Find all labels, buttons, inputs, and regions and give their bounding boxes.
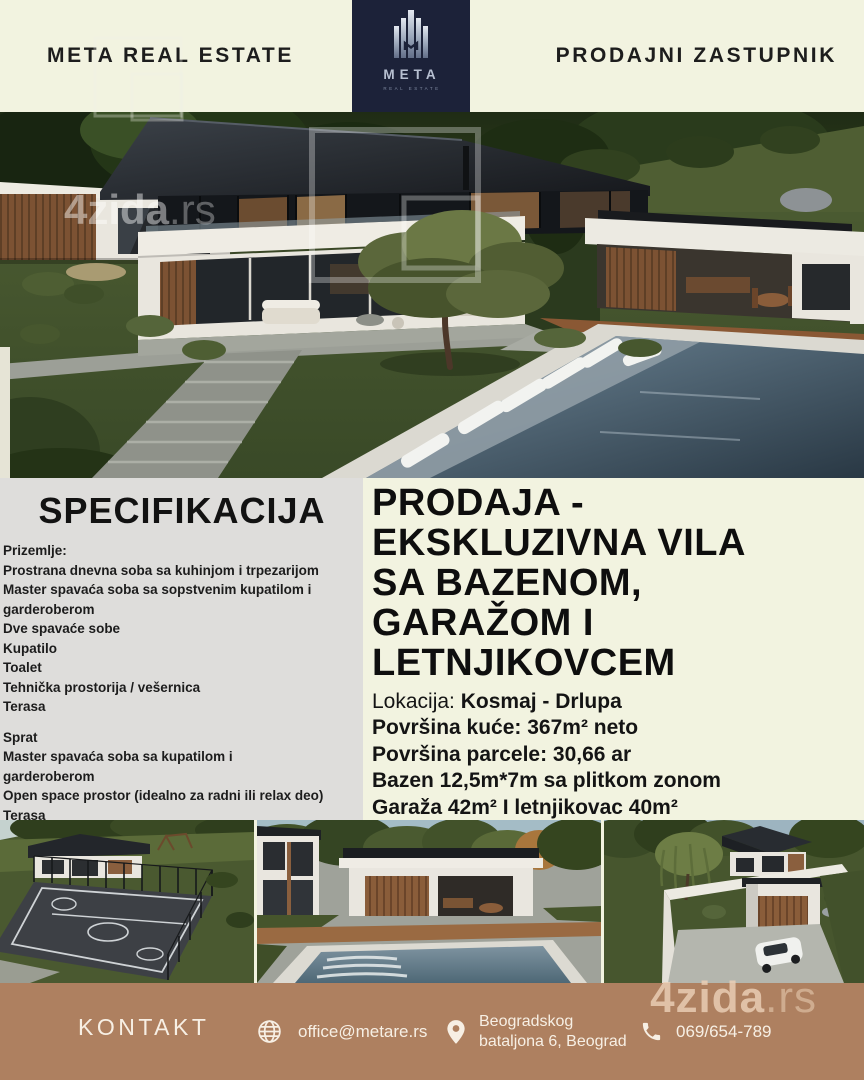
- real-estate-flyer: META REAL ESTATE META REAL E: [0, 0, 864, 1080]
- listing-panel: PRODAJA - EKSKLUZIVNA VILA SA BAZENOM, G…: [363, 478, 864, 820]
- gallery-image-sport-court: [0, 820, 254, 983]
- gallery-image-pool-pavilion: [257, 820, 601, 983]
- info-section: SPECIFIKACIJA Prizemlje:Prostrana dnevna…: [0, 478, 864, 820]
- garage: [742, 878, 824, 930]
- hero-image-villa-render: [0, 112, 864, 478]
- specification-title: SPECIFIKACIJA: [3, 490, 361, 532]
- listing-details: Lokacija: Kosmaj - Drlupa Površina kuće:…: [372, 689, 850, 821]
- listing-title: PRODAJA - EKSKLUZIVNA VILA SA BAZENOM, G…: [372, 483, 850, 683]
- spec-item: Toalet: [3, 658, 361, 678]
- specification-panel: SPECIFIKACIJA Prizemlje:Prostrana dnevna…: [0, 478, 363, 820]
- spec-item: Dve spavaće sobe: [3, 619, 361, 639]
- spec-item: Sprat: [3, 728, 361, 748]
- spec-item: Open space prostor (idealno za radni ili…: [3, 786, 361, 806]
- pavilion: [339, 848, 543, 916]
- listing-detail-line: Lokacija: Kosmaj - Drlupa: [372, 689, 850, 715]
- spec-item: Master spavaća soba sa kupatilom i garde…: [3, 747, 361, 786]
- wood-garage-door: [365, 876, 429, 916]
- pool: [273, 940, 587, 983]
- spec-item: Tehnička prostorija / vešernica: [3, 678, 361, 698]
- svg-text:REAL ESTATE: REAL ESTATE: [383, 86, 440, 91]
- left-house: [257, 826, 321, 920]
- ground-floor-list: Prizemlje:Prostrana dnevna soba sa kuhin…: [3, 541, 361, 717]
- spec-item: Terasa: [3, 697, 361, 717]
- meta-building-icon: META REAL ESTATE: [352, 0, 470, 112]
- upper-floor-list: SpratMaster spavaća soba sa kupatilom i …: [3, 728, 361, 826]
- svg-text:META: META: [383, 67, 440, 82]
- garage-door: [758, 896, 808, 928]
- email-group: office@metare.rs: [256, 983, 427, 1080]
- villa-render-scene: [0, 112, 864, 478]
- gallery-image-aerial-garage: [604, 820, 864, 983]
- phone-text: 069/654-789: [676, 1022, 771, 1042]
- phone-icon: [640, 1020, 663, 1043]
- spec-item: Prostrana dnevna soba sa kuhinjom i trpe…: [3, 561, 361, 581]
- 4zida-watermark-footer: 4zida.rs: [650, 976, 817, 1020]
- contact-label: KONTAKT: [78, 1014, 209, 1041]
- pool-pavilion: [585, 210, 864, 324]
- listing-detail-line: Površina parcele: 30,66 ar: [372, 742, 850, 768]
- meta-logo: META REAL ESTATE: [352, 0, 470, 112]
- location-pin-icon: [446, 1018, 466, 1046]
- footer: KONTAKT office@metare.rs Beogradskog: [0, 983, 864, 1080]
- email-text: office@metare.rs: [298, 1022, 427, 1042]
- listing-detail-line: Garaža 42m² I letnjikovac 40m²: [372, 795, 850, 821]
- wood-garage-door: [606, 247, 676, 311]
- globe-icon: [256, 1018, 283, 1045]
- spec-item: Prizemlje:: [3, 541, 361, 561]
- spec-item: Master spavaća soba sa sopstvenim kupati…: [3, 580, 361, 619]
- rock: [780, 188, 832, 212]
- role-label: PRODAJNI ZASTUPNIK: [556, 44, 837, 68]
- address-group: Beogradskog bataljona 6, Beograd: [446, 983, 627, 1080]
- listing-detail-line: Površina kuće: 367m² neto: [372, 715, 850, 741]
- gallery: [0, 820, 864, 983]
- header: META REAL ESTATE META REAL E: [0, 0, 864, 112]
- spec-item: Kupatilo: [3, 639, 361, 659]
- agency-name: META REAL ESTATE: [47, 44, 294, 68]
- listing-detail-line: Bazen 12,5m*7m sa plitkom zonom: [372, 768, 850, 794]
- address-text: Beogradskog bataljona 6, Beograd: [479, 1012, 627, 1052]
